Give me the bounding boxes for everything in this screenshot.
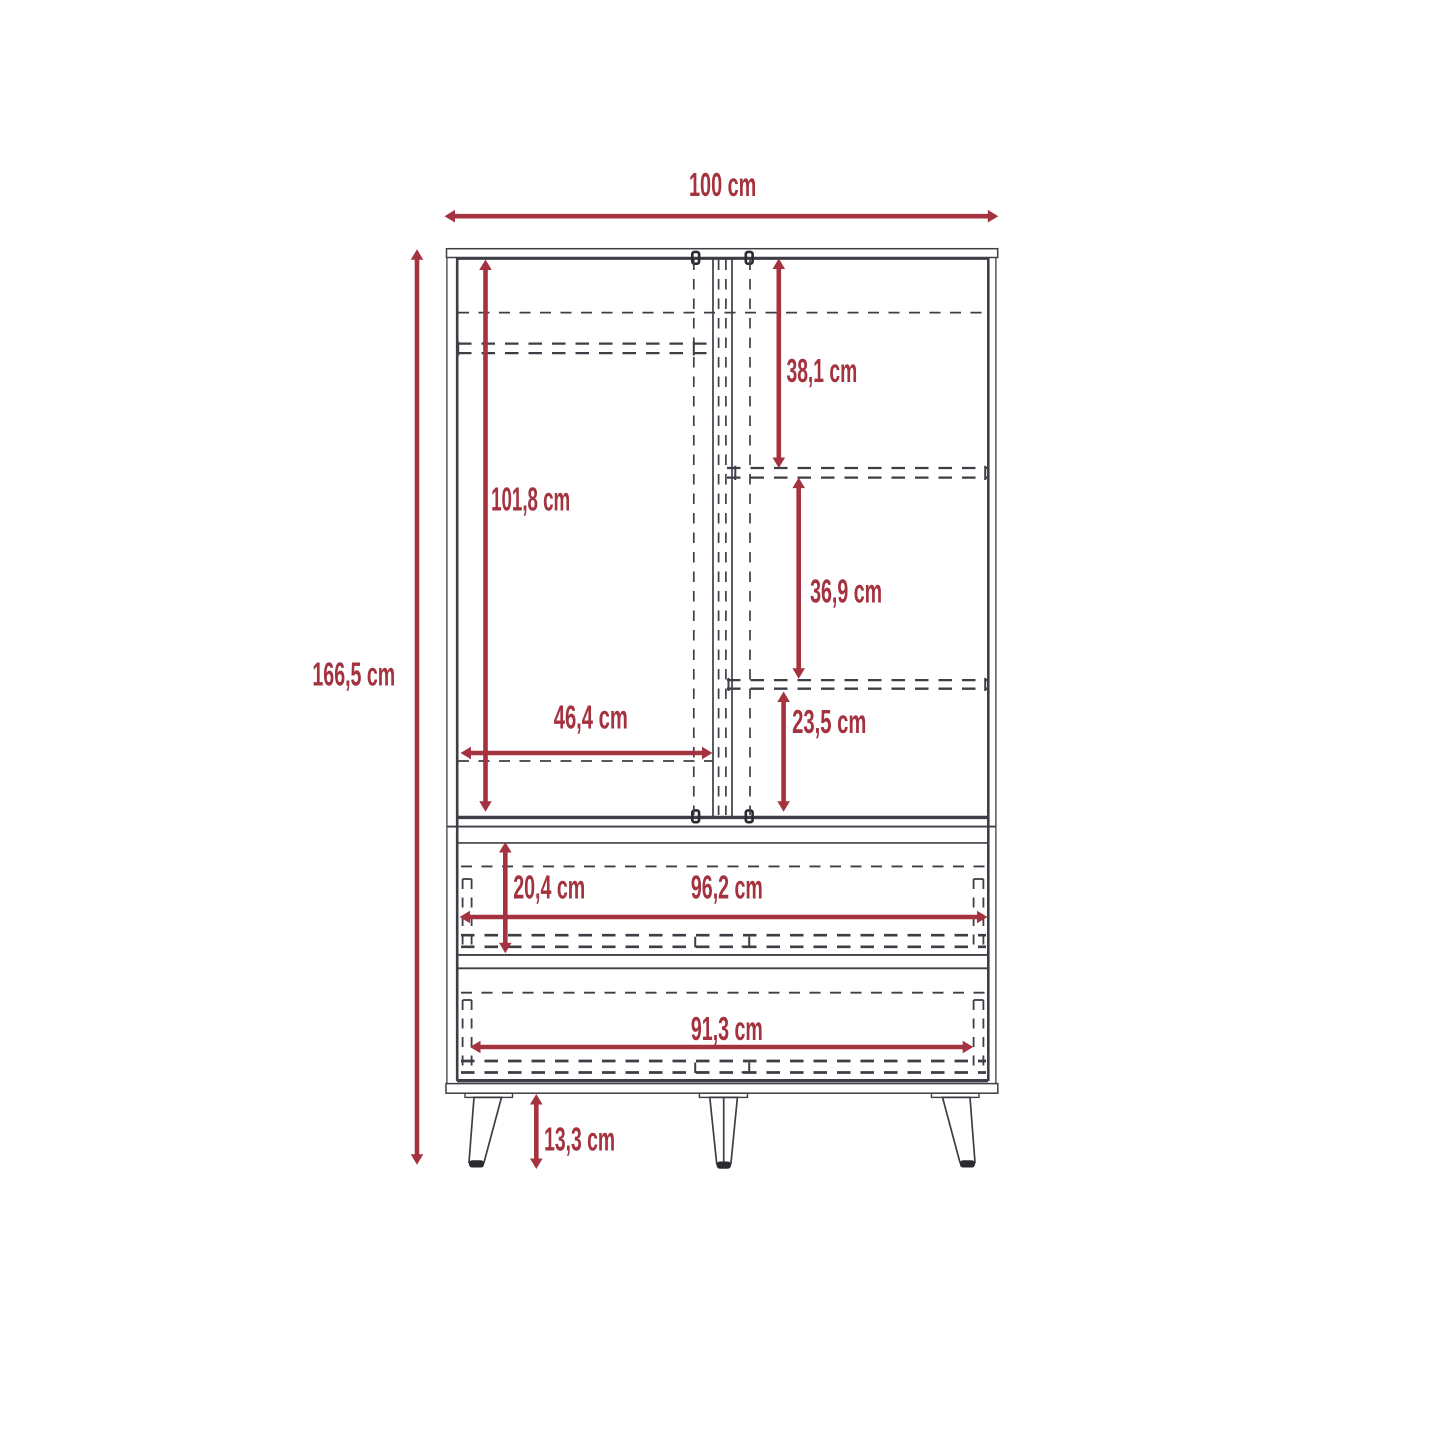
svg-text:101,8 cm: 101,8 cm bbox=[491, 480, 570, 517]
svg-text:166,5 cm: 166,5 cm bbox=[312, 655, 395, 692]
svg-text:96,2 cm: 96,2 cm bbox=[691, 868, 763, 905]
svg-text:36,9 cm: 36,9 cm bbox=[810, 572, 882, 609]
svg-text:13,3 cm: 13,3 cm bbox=[544, 1121, 615, 1158]
svg-text:91,3 cm: 91,3 cm bbox=[691, 1010, 763, 1047]
svg-text:20,4 cm: 20,4 cm bbox=[513, 868, 585, 905]
svg-text:23,5 cm: 23,5 cm bbox=[792, 703, 866, 740]
svg-text:100 cm: 100 cm bbox=[689, 166, 756, 203]
svg-text:46,4 cm: 46,4 cm bbox=[554, 698, 628, 735]
svg-text:38,1 cm: 38,1 cm bbox=[787, 352, 858, 389]
